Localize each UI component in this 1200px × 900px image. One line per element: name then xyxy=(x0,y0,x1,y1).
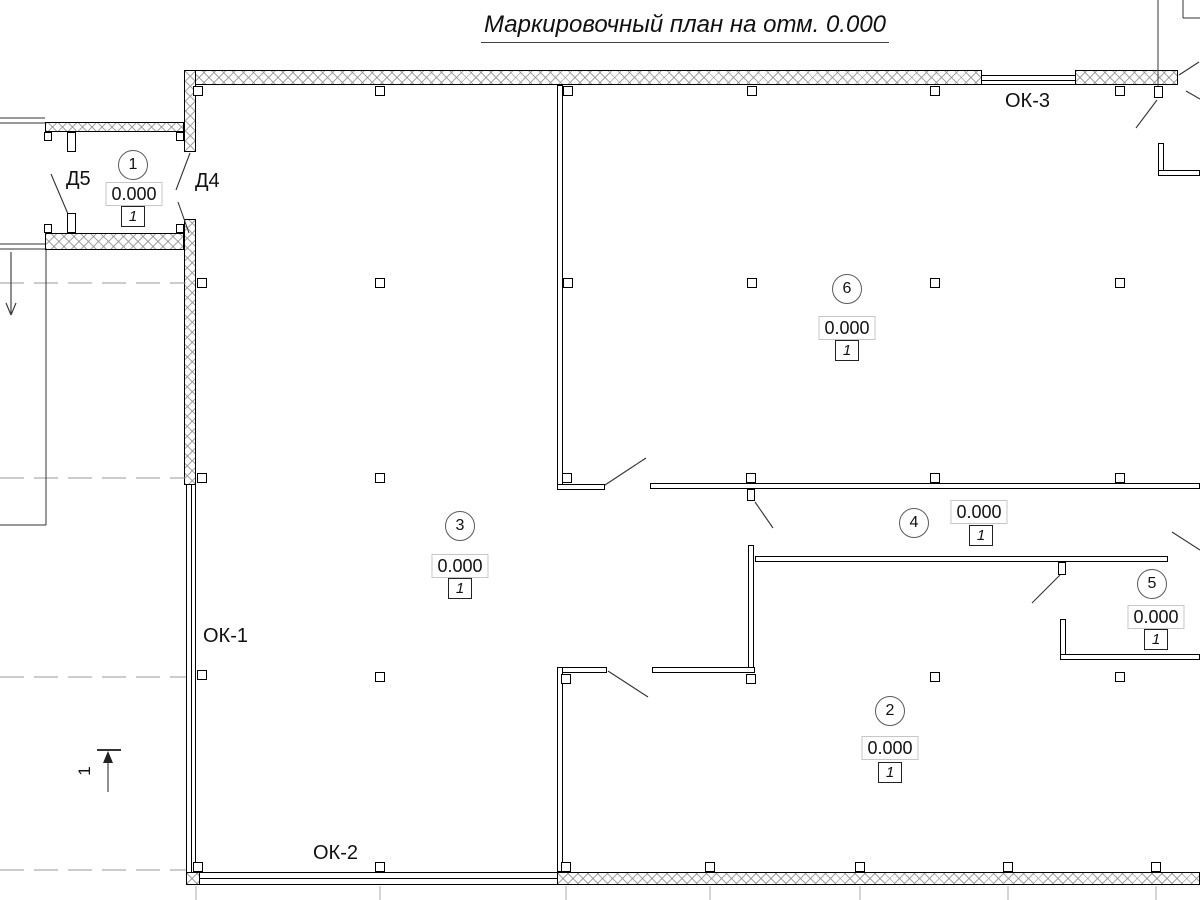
column-marker xyxy=(747,278,757,288)
door-swing xyxy=(1136,100,1157,128)
window-label-ok2: ОК-2 xyxy=(313,842,358,865)
door-jamb xyxy=(747,489,755,501)
column-marker xyxy=(747,86,757,96)
column-marker xyxy=(746,473,756,483)
column-marker xyxy=(375,672,385,682)
column-marker xyxy=(561,674,571,684)
door-jamb xyxy=(176,132,184,141)
door-jamb xyxy=(1154,86,1163,98)
door-swing-d4 xyxy=(176,153,190,190)
room-4-elevation: 0.000 xyxy=(950,500,1007,524)
door-label-d4: Д4 xyxy=(195,170,220,193)
window-label-ok1: ОК-1 xyxy=(203,625,248,648)
window-label-ok3: ОК-3 xyxy=(1005,90,1050,113)
room-5-elevation: 0.000 xyxy=(1127,605,1184,629)
room-3-elevation: 0.000 xyxy=(431,554,488,578)
column-marker xyxy=(563,86,573,96)
stair-arrow-icon xyxy=(11,303,16,315)
room-3-floor-type: 1 xyxy=(448,578,472,599)
column-marker xyxy=(1115,86,1125,96)
door-jamb xyxy=(67,132,76,152)
section-mark-label: 1 xyxy=(75,766,94,775)
room-4-number-bubble: 4 xyxy=(899,508,929,538)
door-swing xyxy=(608,671,648,697)
door-jamb xyxy=(1058,562,1066,575)
column-marker xyxy=(1115,672,1125,682)
column-marker xyxy=(197,670,207,680)
stair-arrow-icon xyxy=(6,303,11,315)
column-marker xyxy=(930,672,940,682)
room-5-number-bubble: 5 xyxy=(1137,569,1167,599)
column-marker xyxy=(930,473,940,483)
room-6-number-bubble: 6 xyxy=(832,274,862,304)
column-marker xyxy=(1115,278,1125,288)
column-marker xyxy=(705,862,715,872)
column-marker xyxy=(197,278,207,288)
column-marker xyxy=(563,278,573,288)
room-6-floor-type: 1 xyxy=(835,340,859,361)
door-swing xyxy=(1032,575,1060,603)
column-marker xyxy=(746,674,756,684)
room-3-number-bubble: 3 xyxy=(445,511,475,541)
room-1-floor-type: 1 xyxy=(121,206,145,227)
column-marker xyxy=(1115,473,1125,483)
room-5-floor-type: 1 xyxy=(1144,629,1168,650)
room-2-floor-type: 1 xyxy=(878,762,902,783)
column-marker xyxy=(375,86,385,96)
room-2-elevation: 0.000 xyxy=(861,736,918,760)
room-1-number-bubble: 1 xyxy=(118,150,148,180)
column-marker xyxy=(855,862,865,872)
floor-plan: 1 Маркировочный план на отм. 0.000 Д5 Д4… xyxy=(0,0,1200,900)
door-swing xyxy=(1172,532,1200,550)
column-marker xyxy=(561,862,571,872)
column-marker xyxy=(562,473,572,483)
column-marker xyxy=(193,86,203,96)
column-marker xyxy=(193,862,203,872)
column-marker xyxy=(930,278,940,288)
room-2-number-bubble: 2 xyxy=(875,696,905,726)
plan-title: Маркировочный план на отм. 0.000 xyxy=(481,11,889,43)
door-jamb xyxy=(176,224,184,233)
column-marker xyxy=(197,473,207,483)
column-marker xyxy=(375,473,385,483)
column-marker xyxy=(1003,862,1013,872)
section-mark-arrow-icon xyxy=(103,751,113,763)
door-swing xyxy=(605,458,646,485)
door-swing xyxy=(1186,91,1200,99)
column-marker xyxy=(930,86,940,96)
room-1-elevation: 0.000 xyxy=(105,182,162,206)
door-jamb xyxy=(44,224,52,233)
door-jamb xyxy=(67,213,76,233)
column-marker xyxy=(375,862,385,872)
column-marker xyxy=(1151,862,1161,872)
door-swing xyxy=(1179,62,1199,75)
column-marker xyxy=(375,278,385,288)
room-4-floor-type: 1 xyxy=(969,525,993,546)
door-jamb xyxy=(44,132,52,141)
door-swing xyxy=(755,502,773,528)
door-label-d5: Д5 xyxy=(66,168,91,191)
room-6-elevation: 0.000 xyxy=(818,316,875,340)
